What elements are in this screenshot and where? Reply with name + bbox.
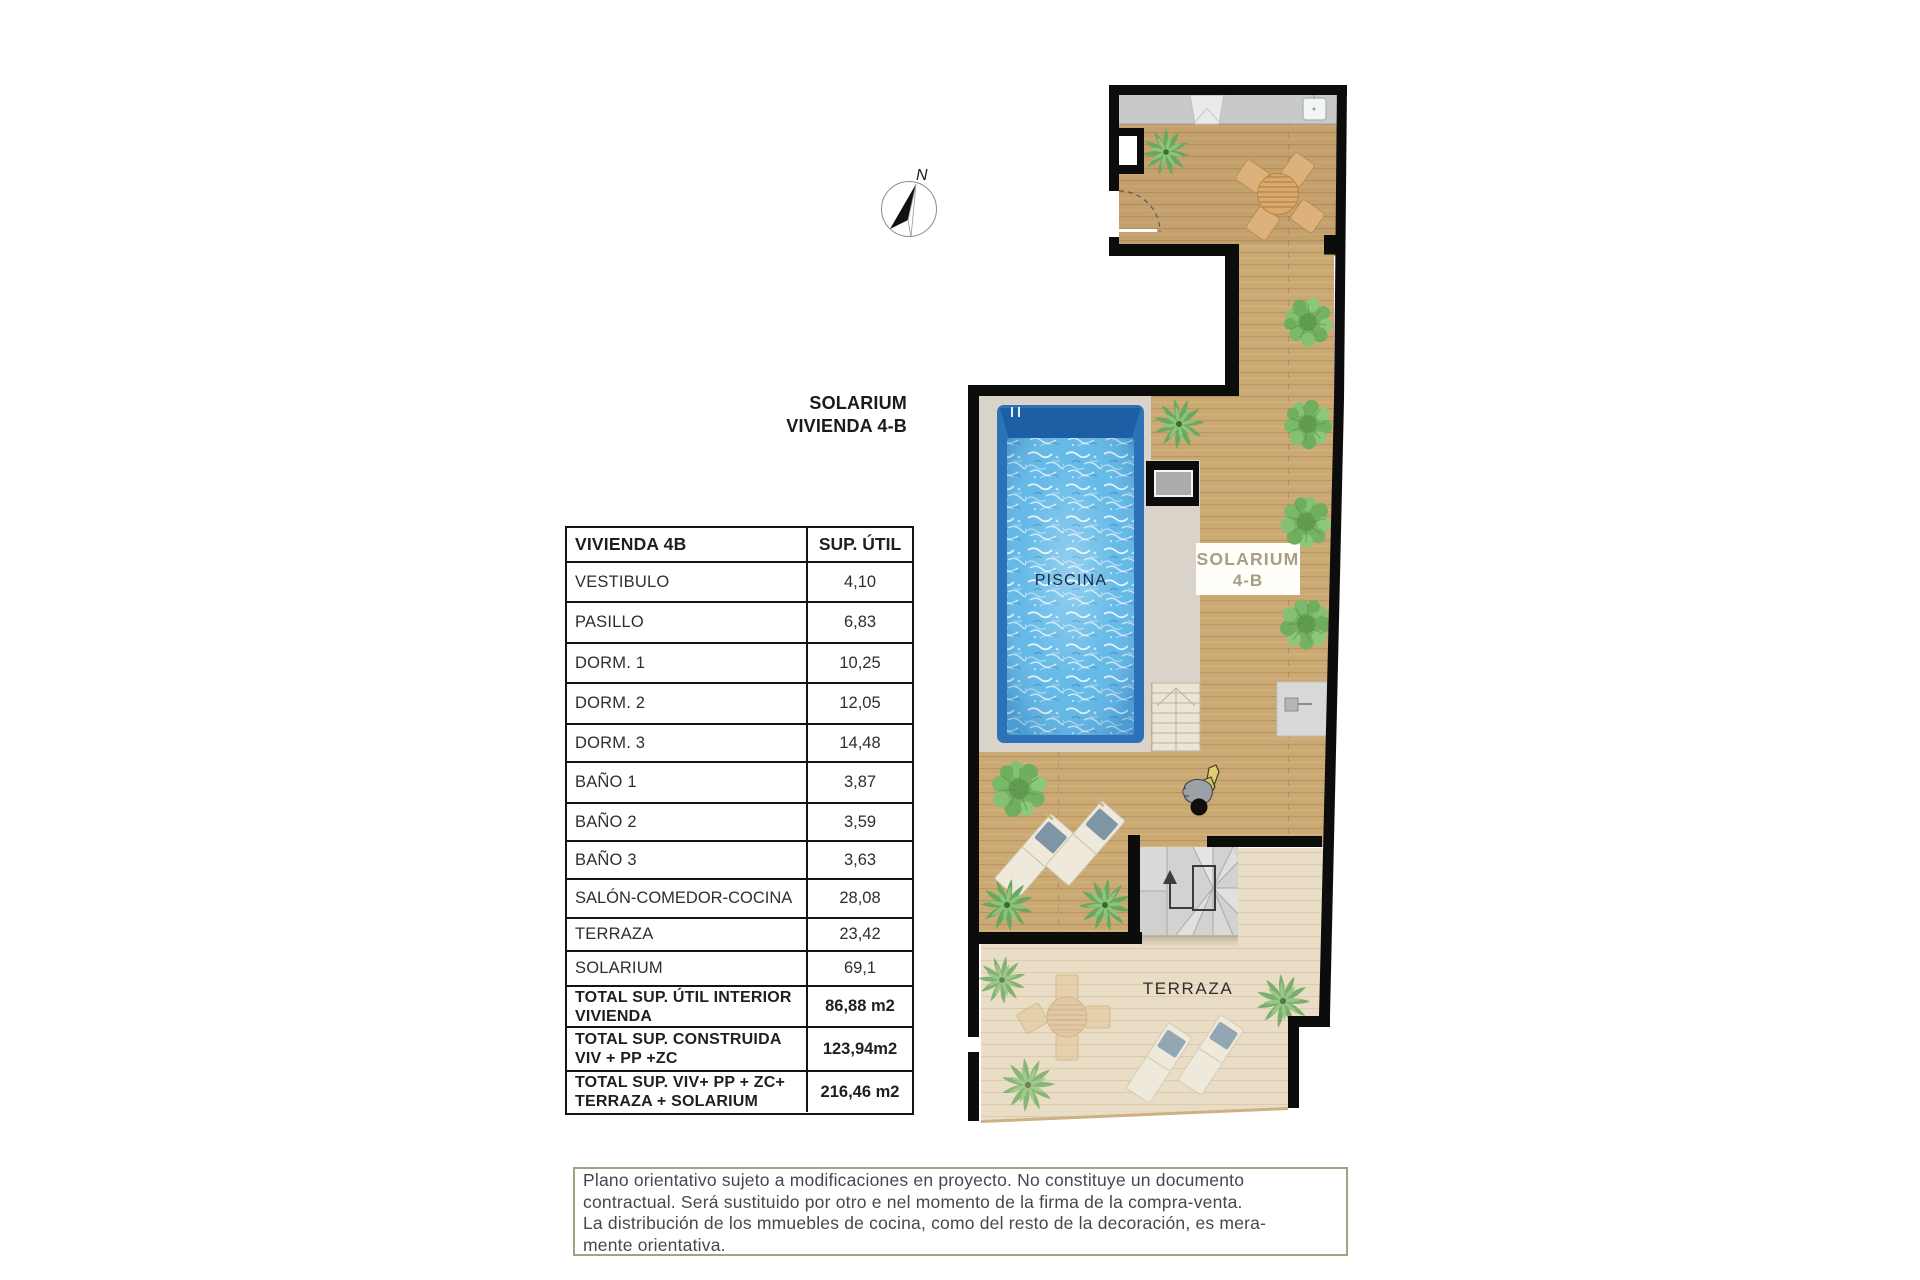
- svg-text:N: N: [916, 167, 928, 184]
- svg-text:SOLARIUM: SOLARIUM: [1197, 549, 1300, 569]
- svg-text:4-B: 4-B: [1233, 571, 1263, 590]
- svg-text:TERRAZA: TERRAZA: [1143, 979, 1234, 998]
- svg-text:PISCINA: PISCINA: [1035, 572, 1107, 589]
